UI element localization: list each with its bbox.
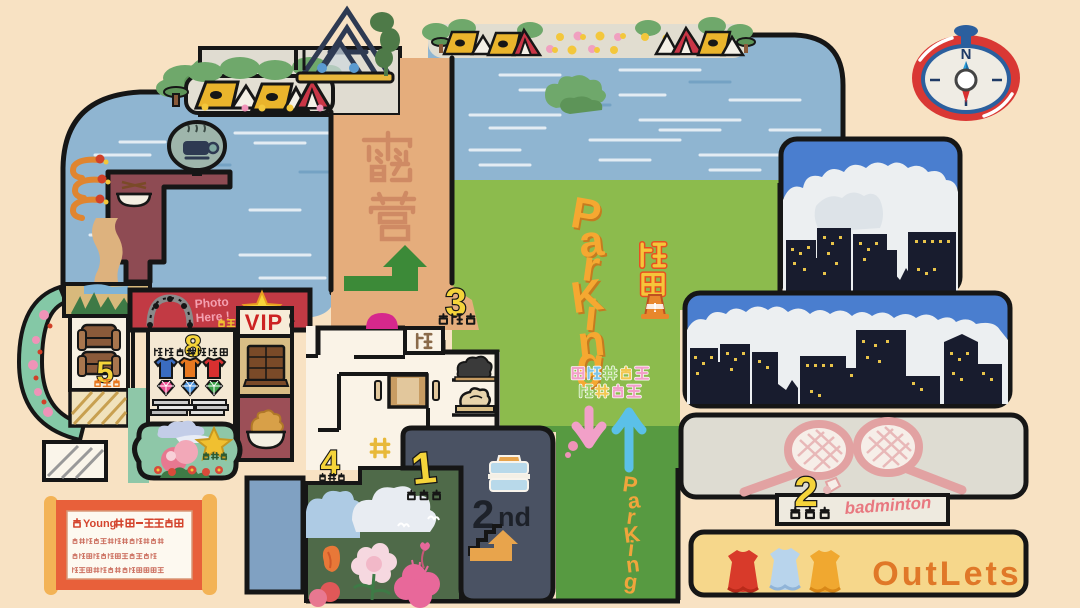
svg-text:nd: nd (498, 502, 531, 532)
svg-text:5: 5 (97, 356, 114, 389)
svg-text:N: N (961, 46, 972, 63)
svg-text:Here !: Here ! (195, 309, 230, 325)
svg-text:1: 1 (409, 443, 438, 494)
svg-text:2: 2 (794, 468, 817, 515)
svg-text:VIP: VIP (245, 310, 283, 335)
svg-text:Young: Young (83, 518, 116, 530)
svg-text:!: ! (653, 300, 657, 315)
svg-text:OutLets: OutLets (872, 555, 1021, 593)
